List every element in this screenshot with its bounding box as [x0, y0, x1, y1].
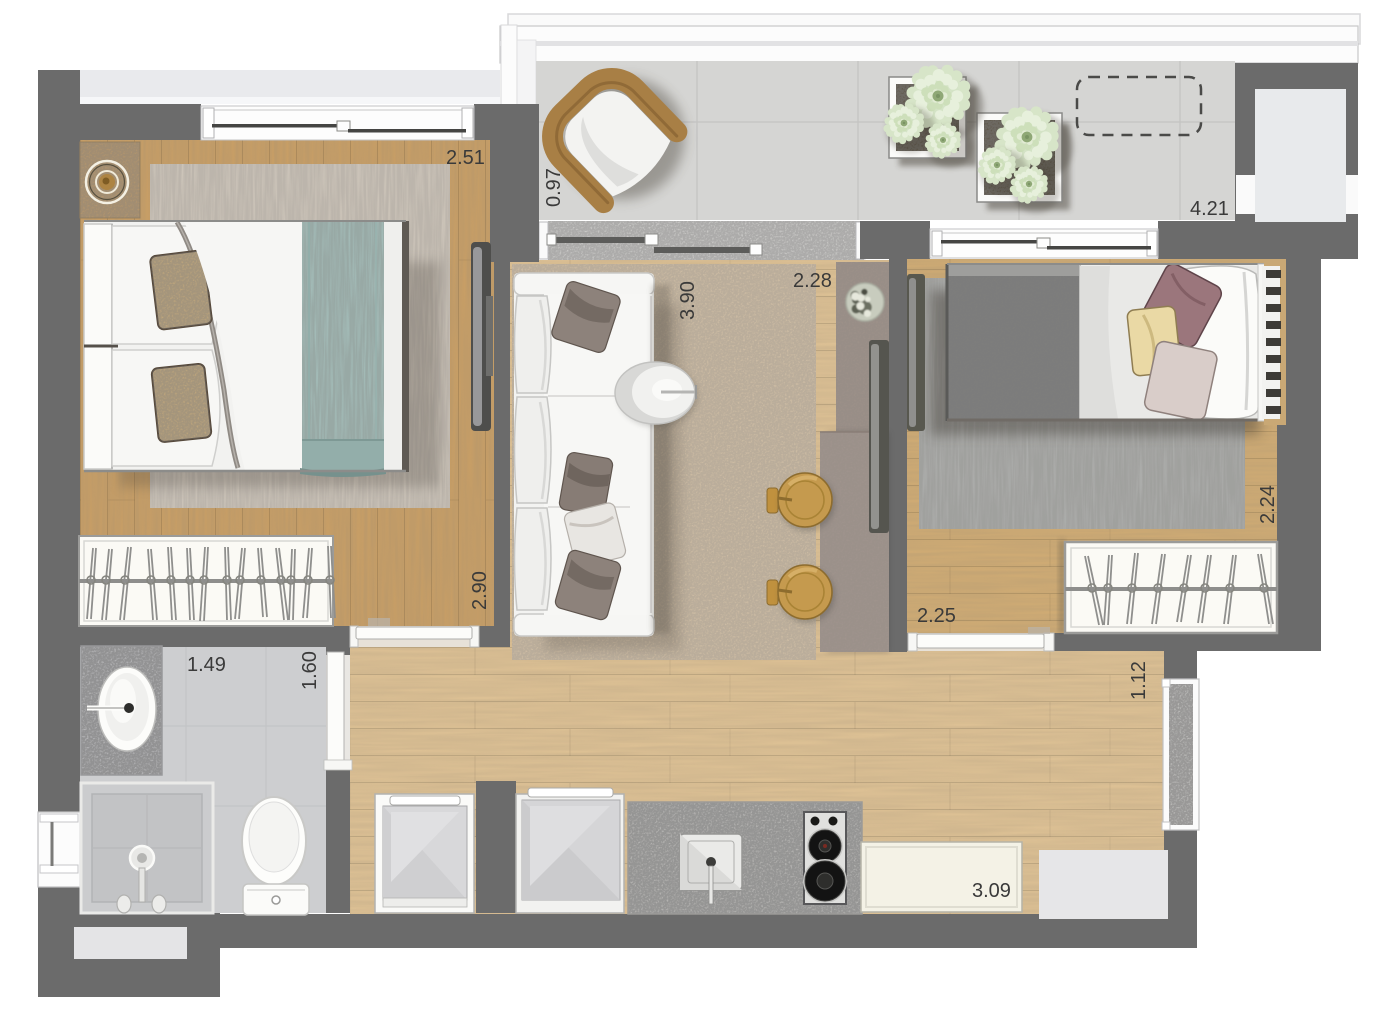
- svg-text:1.49: 1.49: [187, 654, 226, 676]
- svg-text:4.21: 4.21: [1190, 198, 1229, 220]
- svg-text:1.60: 1.60: [299, 651, 321, 690]
- svg-text:2.90: 2.90: [469, 571, 491, 610]
- svg-text:2.24: 2.24: [1257, 485, 1279, 524]
- svg-text:2.28: 2.28: [793, 270, 832, 292]
- svg-text:3.90: 3.90: [677, 281, 699, 320]
- svg-text:3.09: 3.09: [972, 880, 1011, 902]
- svg-text:0.97: 0.97: [543, 168, 565, 207]
- svg-text:1.12: 1.12: [1128, 661, 1150, 700]
- svg-text:2.51: 2.51: [446, 147, 485, 169]
- svg-text:2.25: 2.25: [917, 605, 956, 627]
